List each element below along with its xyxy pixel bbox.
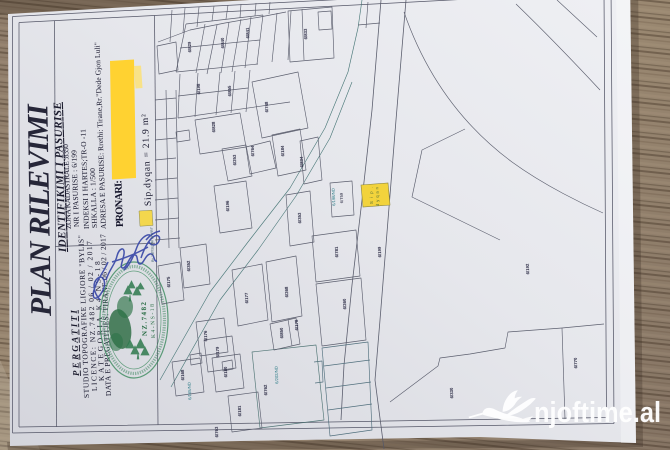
svg-text:njoftime.al: njoftime.al (534, 397, 661, 429)
svg-text:6/199: 6/199 (377, 246, 382, 258)
svg-text:6/841: 6/841 (245, 27, 250, 39)
svg-text:6/770: 6/770 (573, 357, 578, 369)
svg-text:6/198: 6/198 (196, 83, 201, 95)
svg-text:K4-NS-18: K4-NS-18 (150, 304, 157, 338)
svg-text:6/176: 6/176 (203, 330, 208, 342)
svg-text:6/781: 6/781 (334, 246, 339, 258)
svg-text:6/181: 6/181 (237, 405, 242, 417)
svg-text:6/192: 6/192 (525, 263, 530, 275)
svg-text:6/834: 6/834 (299, 156, 304, 168)
svg-text:6/833: 6/833 (303, 28, 308, 40)
svg-text:6/202/ND: 6/202/ND (274, 366, 280, 384)
svg-text:PRONARI:: PRONARI: (113, 180, 126, 227)
svg-text:6/759: 6/759 (339, 192, 344, 203)
svg-text:6/177: 6/177 (244, 292, 249, 304)
svg-text:6/175: 6/175 (166, 276, 171, 288)
svg-text:6/850: 6/850 (279, 327, 284, 339)
svg-text:6/829: 6/829 (187, 41, 192, 53)
svg-text:6/165/ND: 6/165/ND (187, 382, 193, 400)
svg-text:6/330: 6/330 (449, 387, 454, 399)
svg-text:6/198/ND: 6/198/ND (331, 188, 337, 206)
svg-text:6/178: 6/178 (294, 319, 299, 331)
svg-text:6/840: 6/840 (220, 37, 225, 49)
svg-text:6/179: 6/179 (215, 346, 220, 358)
svg-text:6/763: 6/763 (214, 426, 219, 438)
svg-text:6/352: 6/352 (186, 260, 191, 272)
svg-text:6/184: 6/184 (280, 145, 285, 157)
svg-text:6/196: 6/196 (225, 200, 230, 212)
svg-text:6/168: 6/168 (180, 369, 185, 381)
svg-text:6/855: 6/855 (227, 85, 232, 97)
svg-text:6/180: 6/180 (223, 366, 228, 378)
svg-text:6/828: 6/828 (211, 121, 216, 133)
svg-text:6/268: 6/268 (284, 286, 289, 298)
svg-text:6/260: 6/260 (342, 298, 347, 310)
svg-text:6/253: 6/253 (232, 154, 237, 166)
svg-text:6/762: 6/762 (263, 384, 268, 396)
svg-text:6/764: 6/764 (250, 145, 255, 157)
svg-text:6/748: 6/748 (264, 101, 269, 113)
svg-text:6/353: 6/353 (297, 212, 302, 224)
